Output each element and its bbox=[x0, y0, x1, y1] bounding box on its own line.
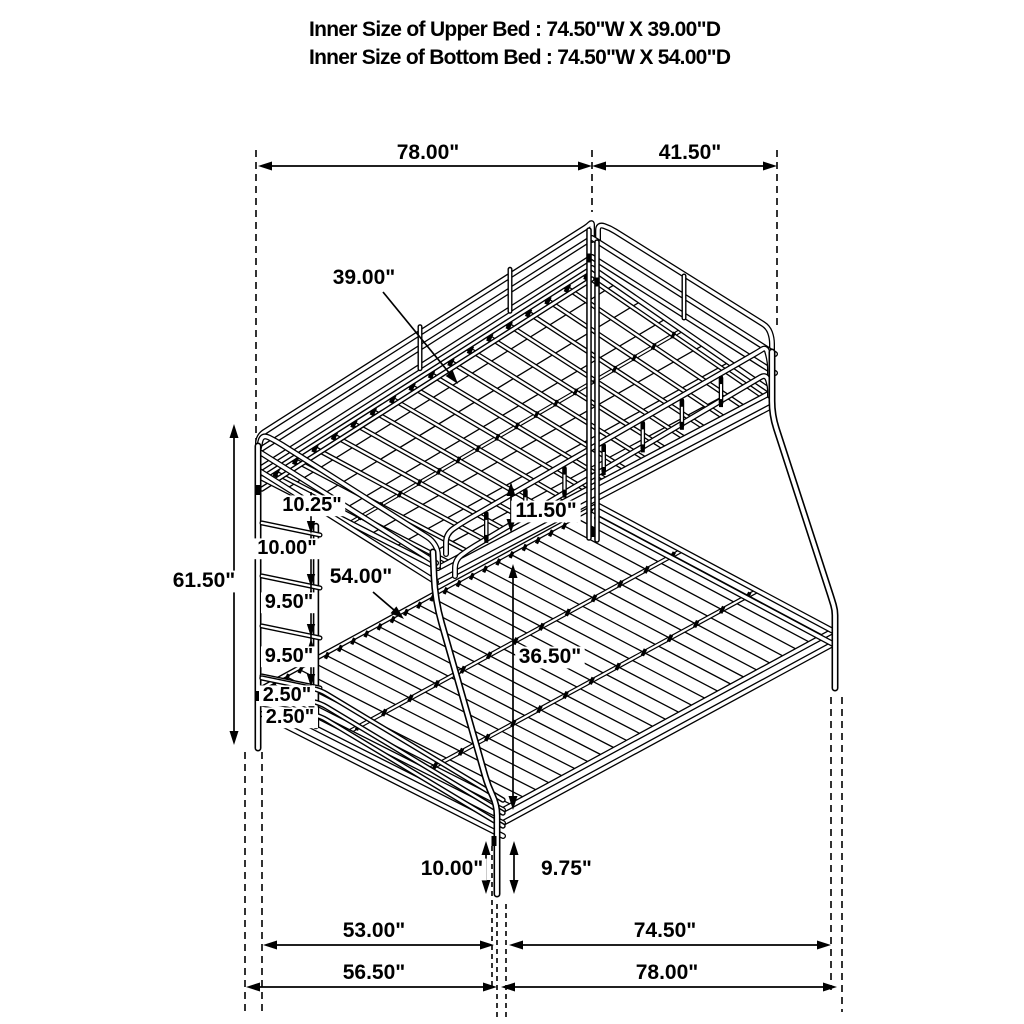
svg-text:10.00": 10.00" bbox=[257, 537, 317, 559]
svg-text:74.50": 74.50" bbox=[634, 919, 697, 942]
svg-text:10.00": 10.00" bbox=[421, 857, 484, 880]
svg-text:53.00": 53.00" bbox=[343, 919, 406, 942]
svg-text:Inner Size of Bottom Bed : 74.: Inner Size of Bottom Bed : 74.50"W X 54.… bbox=[309, 46, 731, 69]
svg-text:56.50": 56.50" bbox=[343, 961, 406, 984]
svg-text:78.00": 78.00" bbox=[397, 141, 460, 164]
svg-text:39.00": 39.00" bbox=[333, 266, 396, 289]
svg-text:36.50": 36.50" bbox=[519, 645, 582, 668]
svg-text:9.75": 9.75" bbox=[541, 857, 592, 880]
svg-text:78.00": 78.00" bbox=[636, 961, 699, 984]
svg-text:2.50": 2.50" bbox=[266, 706, 314, 728]
svg-text:61.50": 61.50" bbox=[173, 569, 236, 592]
svg-text:9.50": 9.50" bbox=[265, 645, 313, 667]
svg-text:41.50": 41.50" bbox=[659, 141, 722, 164]
svg-text:10.25": 10.25" bbox=[282, 494, 342, 516]
svg-text:9.50": 9.50" bbox=[265, 591, 313, 613]
svg-text:54.00": 54.00" bbox=[330, 565, 393, 588]
svg-text:Inner Size of Upper Bed : 74.5: Inner Size of Upper Bed : 74.50"W X 39.0… bbox=[309, 18, 721, 41]
svg-text:2.50": 2.50" bbox=[263, 684, 311, 706]
svg-text:11.50": 11.50" bbox=[515, 499, 576, 522]
